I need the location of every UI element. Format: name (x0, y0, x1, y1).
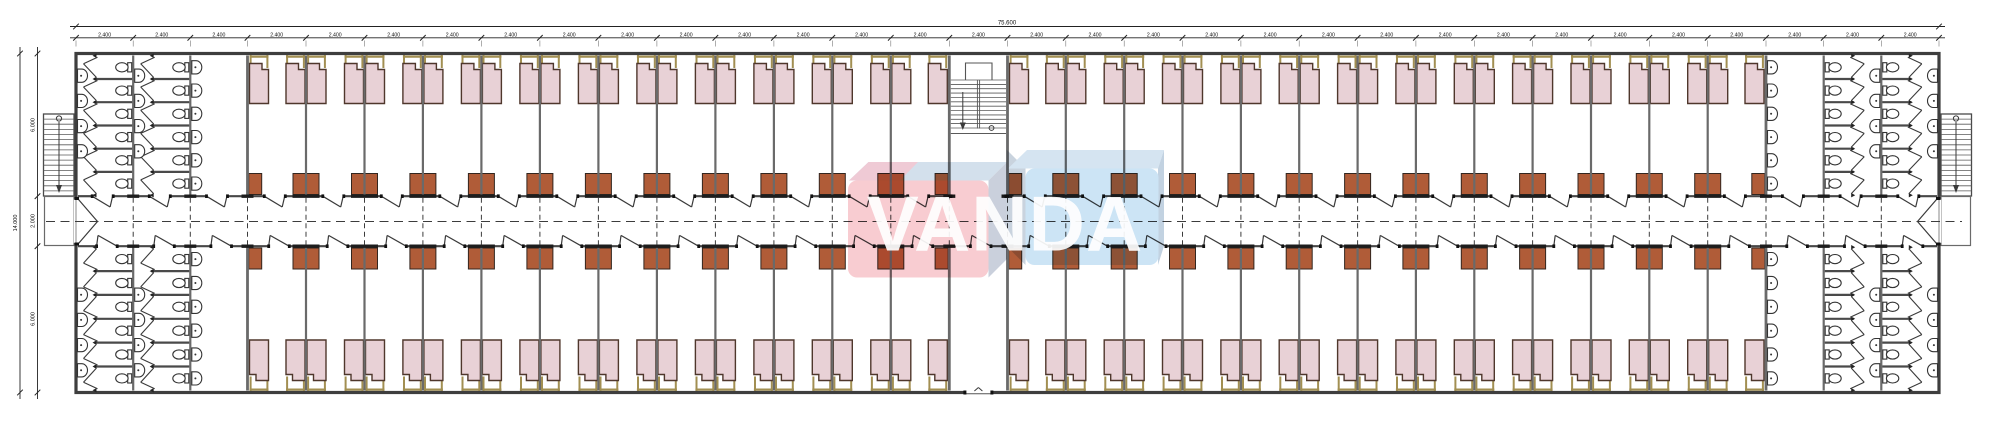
svg-text:2.400: 2.400 (1846, 32, 1859, 38)
svg-text:2.000: 2.000 (31, 214, 37, 228)
svg-text:2.400: 2.400 (1030, 32, 1043, 38)
svg-text:2.400: 2.400 (1497, 32, 1510, 38)
svg-text:75.600: 75.600 (998, 20, 1017, 26)
svg-text:2.400: 2.400 (270, 32, 283, 38)
svg-text:2.400: 2.400 (1555, 32, 1568, 38)
svg-text:2.400: 2.400 (563, 32, 576, 38)
svg-text:2.400: 2.400 (329, 32, 342, 38)
svg-text:6.000: 6.000 (31, 118, 37, 132)
svg-text:2.400: 2.400 (797, 32, 810, 38)
svg-text:2.400: 2.400 (98, 32, 111, 38)
svg-text:6.000: 6.000 (31, 312, 37, 326)
svg-text:2.400: 2.400 (1904, 32, 1917, 38)
svg-text:2.400: 2.400 (1322, 32, 1335, 38)
svg-text:2.400: 2.400 (1788, 32, 1801, 38)
svg-text:2.400: 2.400 (1730, 32, 1743, 38)
svg-text:2.400: 2.400 (387, 32, 400, 38)
svg-text:2.400: 2.400 (1264, 32, 1277, 38)
svg-text:14.000: 14.000 (13, 215, 19, 232)
svg-text:2.400: 2.400 (1614, 32, 1627, 38)
svg-text:2.400: 2.400 (680, 32, 693, 38)
svg-text:2.400: 2.400 (1089, 32, 1102, 38)
svg-text:2.400: 2.400 (855, 32, 868, 38)
svg-text:2.400: 2.400 (1380, 32, 1393, 38)
svg-text:2.400: 2.400 (1439, 32, 1452, 38)
svg-text:VANDA: VANDA (867, 180, 1144, 268)
svg-text:2.400: 2.400 (1147, 32, 1160, 38)
svg-text:2.400: 2.400 (504, 32, 517, 38)
svg-text:2.400: 2.400 (621, 32, 634, 38)
svg-text:2.400: 2.400 (212, 32, 225, 38)
svg-text:2.400: 2.400 (1672, 32, 1685, 38)
svg-text:2.400: 2.400 (1205, 32, 1218, 38)
svg-text:2.400: 2.400 (738, 32, 751, 38)
svg-text:2.400: 2.400 (914, 32, 927, 38)
svg-text:2.400: 2.400 (446, 32, 459, 38)
svg-text:2.400: 2.400 (155, 32, 168, 38)
svg-text:2.400: 2.400 (972, 32, 985, 38)
